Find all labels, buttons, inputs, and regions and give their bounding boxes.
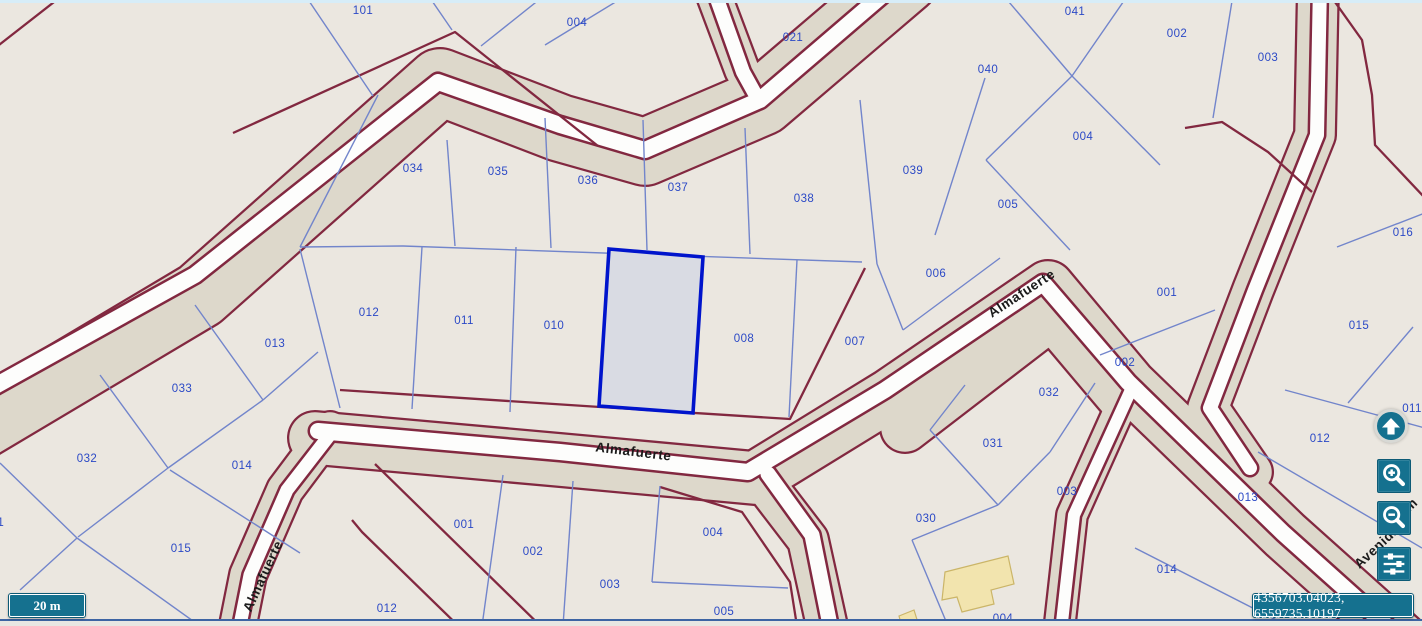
parcel-label: 008 xyxy=(734,333,754,345)
parcel-label: 010 xyxy=(544,320,564,332)
parcel-label: 040 xyxy=(978,64,998,76)
coordinates-display: 4356703.04023, 6559735.10197 xyxy=(1252,593,1414,618)
parcel-label: 002 xyxy=(523,546,543,558)
map-settings-button[interactable] xyxy=(1377,547,1411,581)
map-viewer: AlmafuerteAlmafuerteAlmafuerteAvenidam10… xyxy=(0,0,1422,626)
parcel-label: 007 xyxy=(845,336,865,348)
parcel-label: 012 xyxy=(1310,433,1330,445)
parcel-label: 012 xyxy=(359,307,379,319)
parcel-label: 031 xyxy=(0,517,4,529)
parcel-label: 004 xyxy=(1073,131,1094,143)
sliders-icon xyxy=(1378,548,1410,580)
parcel-label: 012 xyxy=(377,603,397,615)
parcel-label: 033 xyxy=(172,383,192,395)
parcel-label: 003 xyxy=(1057,486,1077,498)
map-canvas[interactable]: AlmafuerteAlmafuerteAlmafuerteAvenidam10… xyxy=(0,0,1422,626)
parcel-label: 015 xyxy=(1349,320,1369,332)
parcel-label: 035 xyxy=(488,166,508,178)
parcel-label: 003 xyxy=(1258,52,1278,64)
parcel-boundary-line xyxy=(300,246,403,247)
parcel-label: 032 xyxy=(77,453,97,465)
bottom-margin xyxy=(0,621,1422,626)
parcel-label: 001 xyxy=(454,519,474,531)
coordinates-value: 4356703.04023, 6559735.10197 xyxy=(1254,590,1412,622)
parcel-label: 004 xyxy=(567,17,588,29)
parcel-label: 013 xyxy=(1238,492,1258,504)
magnifier-minus-icon xyxy=(1378,502,1410,534)
parcel-label: 005 xyxy=(714,606,734,618)
parcel-label: 101 xyxy=(353,5,373,17)
parcel-label: 030 xyxy=(916,513,936,525)
parcel-label: 034 xyxy=(403,163,424,175)
parcel-label: 037 xyxy=(668,182,688,194)
scale-bar-label: 20 m xyxy=(33,598,60,614)
parcel-label: 002 xyxy=(1115,357,1135,369)
scale-bar: 20 m xyxy=(8,593,86,618)
parcel-label: 006 xyxy=(926,268,946,280)
parcel-label: 013 xyxy=(265,338,285,350)
parcel-label: 014 xyxy=(232,460,253,472)
parcel-label: 036 xyxy=(578,175,598,187)
parcel-label: 032 xyxy=(1039,387,1059,399)
parcel-label: 011 xyxy=(1402,403,1422,415)
parcel-label: 011 xyxy=(454,315,474,327)
selected-parcel[interactable] xyxy=(599,249,703,413)
parcel-label: 003 xyxy=(600,579,620,591)
pan-up-button[interactable] xyxy=(1374,409,1408,443)
zoom-out-button[interactable] xyxy=(1377,501,1411,535)
zoom-in-button[interactable] xyxy=(1377,459,1411,493)
top-edge-strip xyxy=(0,0,1422,3)
parcel-label: 041 xyxy=(1065,6,1085,18)
parcel-label: 014 xyxy=(1157,564,1178,576)
parcel-label: 002 xyxy=(1167,28,1187,40)
parcel-label: 021 xyxy=(783,32,803,44)
magnifier-plus-icon xyxy=(1378,460,1410,492)
parcel-label: 001 xyxy=(1157,287,1177,299)
parcel-label: 016 xyxy=(1393,227,1413,239)
arrow-up-icon xyxy=(1379,414,1403,438)
parcel-label: 039 xyxy=(903,165,923,177)
parcel-label: 005 xyxy=(998,199,1018,211)
parcel-label: 004 xyxy=(703,527,724,539)
parcel-label: 038 xyxy=(794,193,814,205)
parcel-label: 031 xyxy=(983,438,1003,450)
parcel-label: 015 xyxy=(171,543,191,555)
